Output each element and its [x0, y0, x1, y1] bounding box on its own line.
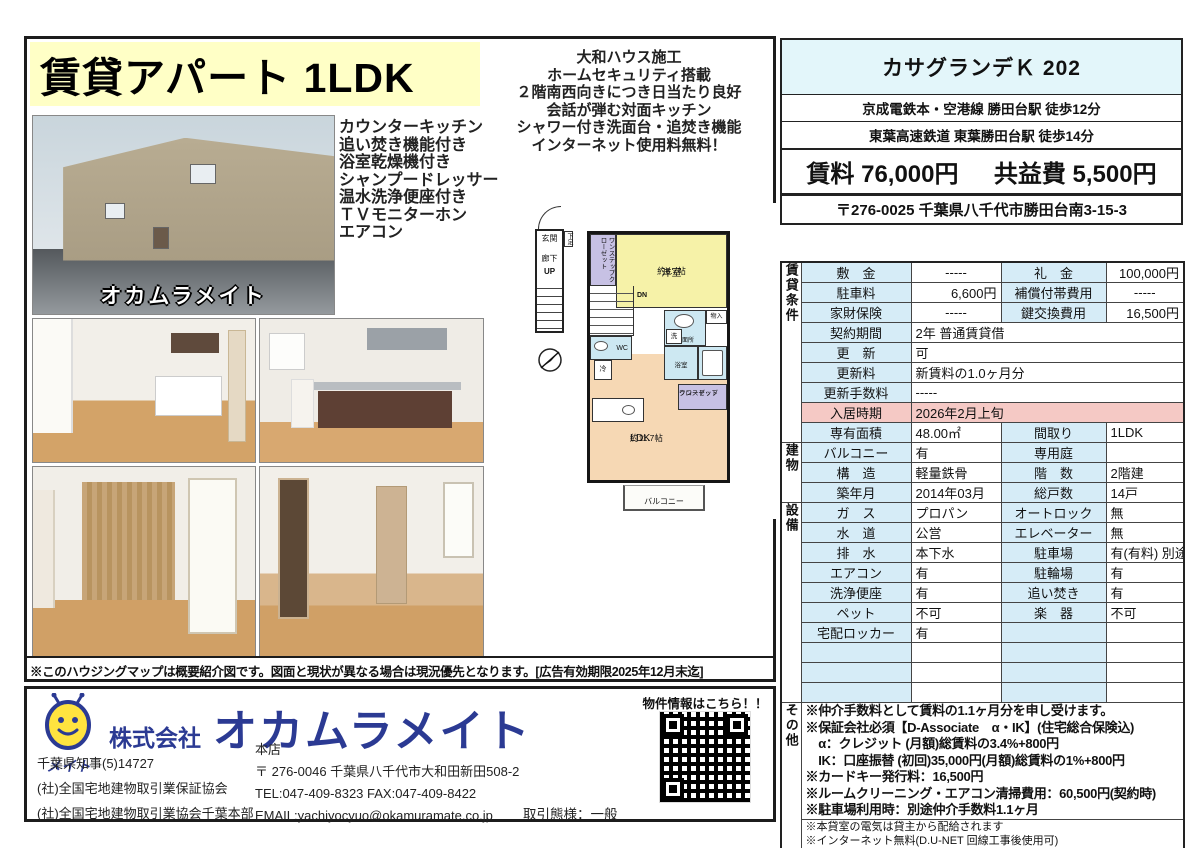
- sink-icon: [674, 314, 694, 328]
- spec-value: 有: [911, 563, 1001, 583]
- spec-value: 2年 普通賃貸借: [911, 323, 1184, 343]
- spec-label: [801, 683, 911, 703]
- note-line: ※本貸室の電気は貸主から配給されます: [806, 820, 1180, 834]
- photo-shape: [367, 328, 447, 351]
- kitchen-sink-icon: [622, 405, 635, 415]
- spec-value: 6,600円: [911, 283, 1001, 303]
- spec-row-blank: [781, 643, 1184, 663]
- spec-value: -----: [1106, 283, 1184, 303]
- spec-label: 駐輪場: [1001, 563, 1106, 583]
- spec-table: 賃貸条件 敷 金 ----- 礼 金 100,000円 駐車料 6,600円 補…: [780, 261, 1185, 848]
- feature-line: 追い焚き機能付き: [339, 137, 529, 155]
- photo-shape: [63, 138, 334, 261]
- photo-exterior: オカムラメイト: [32, 115, 335, 315]
- feature-line: ＴＶモニターホン: [339, 207, 529, 225]
- qr-finder: [726, 714, 748, 736]
- access-line-1: 京成電鉄本・空港線 勝田台駅 徒歩12分: [782, 94, 1181, 121]
- room-size: 約11.7帖: [630, 432, 663, 444]
- photo-shape: [269, 333, 305, 370]
- spec-row: ペット 不可 楽 器 不可: [781, 603, 1184, 623]
- spec-value: 48.00㎡: [911, 423, 1001, 443]
- note-line: IK：口座振替 (初回)35,000円(月額)総賃料の1%+800円: [806, 753, 1180, 770]
- section-label-equipment: 設備: [781, 503, 801, 703]
- association-2: (社)全国宅地建物取引業協会千葉本部: [37, 801, 254, 826]
- bathtub: [698, 346, 727, 380]
- spec-row: 排 水 本下水 駐車場 有(有料) 別途契: [781, 543, 1184, 563]
- spec-value: 有: [911, 443, 1001, 463]
- spec-row: 構 造 軽量鉄骨 階 数 2階建: [781, 463, 1184, 483]
- spec-value: 無: [1106, 523, 1184, 543]
- photo-shape: [171, 333, 220, 353]
- spec-label: 構 造: [801, 463, 911, 483]
- office-email: EMAIL:yachiyocyuo@okamuramate.co.jp: [255, 805, 519, 827]
- deal-type: 取引態様：一般: [523, 803, 618, 823]
- spec-label: 鍵交換費用: [1001, 303, 1106, 323]
- spec-label: 楽 器: [1001, 603, 1106, 623]
- spec-row: 駐車料 6,600円 補償付帯費用 -----: [781, 283, 1184, 303]
- photo-room-doors: [259, 466, 484, 658]
- spec-label: 礼 金: [1001, 262, 1106, 283]
- spec-label: 家財保険: [801, 303, 911, 323]
- section-label-lease: 賃貸条件: [781, 262, 801, 443]
- spec-label: 専用庭: [1001, 443, 1106, 463]
- balcony: バルコニー: [623, 485, 705, 511]
- spec-row: 宅配ロッカー 有: [781, 623, 1184, 643]
- spec-value: -----: [911, 383, 1184, 403]
- shoe-box-label: 下足: [564, 231, 573, 247]
- photo-shape: [291, 379, 313, 428]
- photo-shape: [33, 490, 55, 608]
- spec-value: [911, 663, 1001, 683]
- stairs-up: [537, 281, 562, 331]
- other-notes: ※仲介手数料として賃料の1.1ヶ月分を申し受けます。 ※保証会社必須【D-Ass…: [801, 703, 1184, 820]
- feature-line: カウンターキッチン: [339, 119, 529, 137]
- washer-box: 洗: [666, 329, 682, 344]
- spec-row: 築年月 2014年03月 総戸数 14戸: [781, 483, 1184, 503]
- photo-shape: [190, 164, 216, 184]
- right-section: カサグランデＫ 202 京成電鉄本・空港線 勝田台駅 徒歩12分 東葉高速鉄道 …: [780, 38, 1183, 848]
- photo-shape: [188, 478, 237, 634]
- photo-shape: [155, 376, 222, 416]
- spec-label: 更新手数料: [801, 383, 911, 403]
- spec-value: -----: [911, 262, 1001, 283]
- spec-value: [1106, 443, 1184, 463]
- spec-label: 入居時期: [801, 403, 911, 423]
- note-line: ※ルームクリーニング・エアコン清掃費用：60,500円(契約時): [806, 786, 1180, 803]
- spec-value: 不可: [911, 603, 1001, 623]
- room-closet-2: ワンステップ クローゼット: [678, 384, 727, 410]
- spec-label: 宅配ロッカー: [801, 623, 911, 643]
- rent-line: 賃料 76,000円 共益費 5,500円: [782, 148, 1181, 195]
- office-info: 本店 〒 276-0046 千葉県八千代市大和田新田508-2 TEL:047-…: [255, 739, 519, 827]
- spec-value: 14戸: [1106, 483, 1184, 503]
- photo-shape: [82, 482, 175, 600]
- spec-label: [1001, 623, 1106, 643]
- property-address: 〒276-0025 千葉県八千代市勝田台南3-15-3: [782, 195, 1181, 223]
- spec-value: -----: [911, 303, 1001, 323]
- spec-value: 2014年03月: [911, 483, 1001, 503]
- photo-kitchen: [259, 318, 484, 463]
- spec-row: 更新手数料 -----: [781, 383, 1184, 403]
- spec-label: 間取り: [1001, 423, 1106, 443]
- spec-label: バルコニー: [801, 443, 911, 463]
- association-1: (社)全国宅地建物取引業保証協会: [37, 776, 254, 801]
- spec-label: 敷 金: [801, 262, 911, 283]
- spec-label: [801, 643, 911, 663]
- spec-value: 公営: [911, 523, 1001, 543]
- spec-row-move-in: 入居時期 2026年2月上旬: [781, 403, 1184, 423]
- spec-label: [1001, 643, 1106, 663]
- spec-value: 可: [911, 343, 1184, 363]
- note-line: ※インターネット無料(D.U-NET 回線工事後使用可): [806, 834, 1180, 848]
- photo-shape: [33, 319, 73, 433]
- feature-line: エアコン: [339, 224, 529, 242]
- flyer-page: 賃貸アパート 1LDK 大和ハウス施工 ホームセキュリティ搭載 ２階南西向きにつ…: [0, 0, 1200, 848]
- room-closet-1: ワンステップクローゼット: [590, 234, 616, 286]
- room-label: クローゼット: [679, 390, 718, 398]
- spec-value: 無: [1106, 503, 1184, 523]
- spec-row: 更新料 新賃料の1.0ヶ月分: [781, 363, 1184, 383]
- feature-list: カウンターキッチン 追い焚き機能付き 浴室乾燥機付き シャンプードレッサー 温水…: [339, 119, 529, 242]
- entry-block: 玄関 廊下 UP: [535, 229, 564, 333]
- spec-value: 本下水: [911, 543, 1001, 563]
- room-label: WC: [616, 345, 628, 352]
- photo-shape: [443, 482, 474, 558]
- spec-row: 設備 ガ ス プロパン オートロック 無: [781, 503, 1184, 523]
- room-size: 約6.7帖: [657, 265, 686, 277]
- spec-label: 駐車料: [801, 283, 911, 303]
- property-header: カサグランデＫ 202 京成電鉄本・空港線 勝田台駅 徒歩12分 東葉高速鉄道 …: [780, 38, 1183, 225]
- spec-value: 100,000円: [1106, 262, 1184, 283]
- feature-line: 温水洗浄便座付き: [339, 189, 529, 207]
- spec-value: [911, 643, 1001, 663]
- spec-row-bottom-notes: ※本貸室の電気は貸主から配給されます ※インターネット無料(D.U-NET 回線…: [781, 819, 1184, 848]
- spec-row: 家財保険 ----- 鍵交換費用 16,500円: [781, 303, 1184, 323]
- fee-label: 共益費: [994, 161, 1066, 188]
- office-tel-fax: TEL:047-409-8323 FAX:047-409-8422: [255, 783, 519, 805]
- spec-value: 不可: [1106, 603, 1184, 623]
- rent-label: 賃料: [806, 161, 854, 188]
- spec-row: エアコン 有 駐輪場 有: [781, 563, 1184, 583]
- company-prefix: 株式会社: [109, 719, 201, 753]
- spec-row: 契約期間 2年 普通賃貸借: [781, 323, 1184, 343]
- room-bath: 浴室: [664, 346, 698, 380]
- spec-label: 洗浄便座: [801, 583, 911, 603]
- feature-line: 浴室乾燥機付き: [339, 154, 529, 172]
- spec-value: [1106, 663, 1184, 683]
- spec-label: 築年月: [801, 483, 911, 503]
- spec-value: 1LDK: [1106, 423, 1184, 443]
- entrance-label: 玄関: [537, 233, 562, 244]
- spec-value: 有: [1106, 583, 1184, 603]
- company-licenses: 千葉県知事(5)14727 (社)全国宅地建物取引業保証協会 (社)全国宅地建物…: [37, 751, 254, 826]
- spec-value: プロパン: [911, 503, 1001, 523]
- unit-outline: ワンステップクローゼット 洋室 約6.7帖 DN WC 洗面所 物入 洗 浴室: [587, 231, 730, 483]
- spec-label: 更 新: [801, 343, 911, 363]
- photo-shape: [318, 391, 452, 428]
- spec-value: 新賃料の1.0ヶ月分: [911, 363, 1184, 383]
- photo-shape: [309, 382, 461, 391]
- bottom-notes: ※本貸室の電気は貸主から配給されます ※インターネット無料(D.U-NET 回線…: [801, 819, 1184, 848]
- corridor-label: 廊下: [537, 253, 562, 264]
- spec-label: 補償付帯費用: [1001, 283, 1106, 303]
- spec-row: 水 道 公営 エレベーター 無: [781, 523, 1184, 543]
- spec-value: 有: [911, 623, 1001, 643]
- access-line-2: 東葉高速鉄道 東葉勝田台駅 徒歩14分: [782, 121, 1181, 148]
- spec-row: 建物 バルコニー 有 専用庭: [781, 443, 1184, 463]
- title-banner: 賃貸アパート 1LDK: [30, 42, 480, 106]
- spec-value: 2階建: [1106, 463, 1184, 483]
- spec-value: 有(有料) 別途契: [1106, 543, 1184, 563]
- spec-label: 追い焚き: [1001, 583, 1106, 603]
- photo-living: [32, 318, 256, 463]
- spec-label: 水 道: [801, 523, 911, 543]
- spec-value: [1106, 643, 1184, 663]
- bathtub-icon: [702, 350, 723, 376]
- spec-label: 駐車場: [1001, 543, 1106, 563]
- room-storage: 物入: [706, 310, 727, 324]
- spec-row-other: その他 ※仲介手数料として賃料の1.1ヶ月分を申し受けます。 ※保証会社必須【D…: [781, 703, 1184, 820]
- qr-caption: 物件情報はこちら！！: [635, 693, 775, 712]
- qr-finder: [662, 778, 684, 800]
- entry-door-arc: [538, 206, 561, 229]
- spec-value: [1106, 623, 1184, 643]
- page-title: 賃貸アパート 1LDK: [40, 44, 415, 104]
- section-label-building: 建物: [781, 443, 801, 503]
- spec-value: 16,500円: [1106, 303, 1184, 323]
- spec-row: 賃貸条件 敷 金 ----- 礼 金 100,000円: [781, 262, 1184, 283]
- spec-value: 有: [911, 583, 1001, 603]
- spec-label: [801, 663, 911, 683]
- spec-value: 有: [1106, 563, 1184, 583]
- note-line: α：クレジット (月額)総賃料の3.4%+800円: [806, 736, 1180, 753]
- license-number: 千葉県知事(5)14727: [37, 751, 254, 776]
- spec-label: エレベーター: [1001, 523, 1106, 543]
- spec-label: オートロック: [1001, 503, 1106, 523]
- photo-shape: [105, 203, 125, 219]
- spec-row: 更 新 可: [781, 343, 1184, 363]
- note-line: ※駐車場利用時：別途仲介手数料1.1ヶ月: [806, 802, 1180, 819]
- spec-label: [1001, 663, 1106, 683]
- rent-value: 76,000円: [861, 161, 958, 188]
- room-wc: WC: [590, 336, 632, 360]
- stairs-down: [590, 286, 634, 336]
- highlight-line: ２階南西向きにつき日当たり良好: [479, 84, 779, 102]
- disclaimer-text: ※このハウジングマップは概要紹介図です。図面と現状が異なる場合は現況優先となりま…: [27, 656, 773, 679]
- company-section: メイト 株式会社 オカムラメイト 千葉県知事(5)14727 (社)全国宅地建物…: [24, 686, 776, 822]
- spec-label: 総戸数: [1001, 483, 1106, 503]
- spec-label: [1001, 683, 1106, 703]
- spec-label: ペット: [801, 603, 911, 623]
- left-section: 賃貸アパート 1LDK 大和ハウス施工 ホームセキュリティ搭載 ２階南西向きにつ…: [24, 36, 776, 682]
- spec-value: 軽量鉄骨: [911, 463, 1001, 483]
- fridge-box: 冷: [594, 360, 612, 380]
- bee-icon: [40, 693, 98, 751]
- spec-row: 専有面積 48.00㎡ 間取り 1LDK: [781, 423, 1184, 443]
- photo-shape: [153, 227, 169, 249]
- spec-row-blank: [781, 663, 1184, 683]
- qr-finder: [662, 714, 684, 736]
- up-label: UP: [537, 267, 562, 276]
- note-line: ※保証会社必須【D-Associate α・IK】(住宅総合保険込): [806, 720, 1180, 737]
- floorplan: 玄関 廊下 UP 下足 ワンステップクローゼット 洋室 約6.7帖 DN: [531, 203, 778, 519]
- fee-value: 5,500円: [1073, 161, 1157, 188]
- note-line: ※カードキー発行料：16,500円: [806, 769, 1180, 786]
- photo-room-accent: [32, 466, 256, 658]
- note-line: ※仲介手数料として賃料の1.1ヶ月分を申し受けます。: [806, 703, 1180, 720]
- photo-shape: [228, 330, 246, 442]
- kitchen-counter: [592, 398, 644, 422]
- spec-row: 洗浄便座 有 追い焚き 有: [781, 583, 1184, 603]
- spec-label: 階 数: [1001, 463, 1106, 483]
- spec-value: 2026年2月上旬: [911, 403, 1184, 423]
- spec-value: [911, 683, 1001, 703]
- spec-label: 排 水: [801, 543, 911, 563]
- toilet-icon: [594, 341, 608, 351]
- photo-shape: [278, 478, 309, 619]
- spec-row-blank: [781, 683, 1184, 703]
- spec-label: エアコン: [801, 563, 911, 583]
- spec-table-wrap: 賃貸条件 敷 金 ----- 礼 金 100,000円 駐車料 6,600円 補…: [780, 261, 1183, 848]
- feature-line: シャンプードレッサー: [339, 172, 529, 190]
- spec-value: [1106, 683, 1184, 703]
- office-address: 〒 276-0046 千葉県八千代市大和田新田508-2: [255, 761, 519, 783]
- qr-code: [659, 711, 751, 803]
- spec-label: ガ ス: [801, 503, 911, 523]
- photo-watermark: オカムラメイト: [33, 280, 334, 310]
- highlight-line: 会話が弾む対面キッチン: [479, 102, 779, 120]
- spec-label: 契約期間: [801, 323, 911, 343]
- property-name: カサグランデＫ 202: [782, 40, 1181, 94]
- spec-label: 更新料: [801, 363, 911, 383]
- dn-label: DN: [637, 292, 647, 299]
- office-label: 本店: [255, 739, 519, 761]
- spec-label: 専有面積: [801, 423, 911, 443]
- section-label-other: その他: [781, 703, 801, 848]
- compass-icon: [537, 347, 563, 373]
- highlight-line: ホームセキュリティ搭載: [479, 67, 779, 85]
- highlight-line: 大和ハウス施工: [479, 49, 779, 67]
- photo-shape: [376, 486, 407, 604]
